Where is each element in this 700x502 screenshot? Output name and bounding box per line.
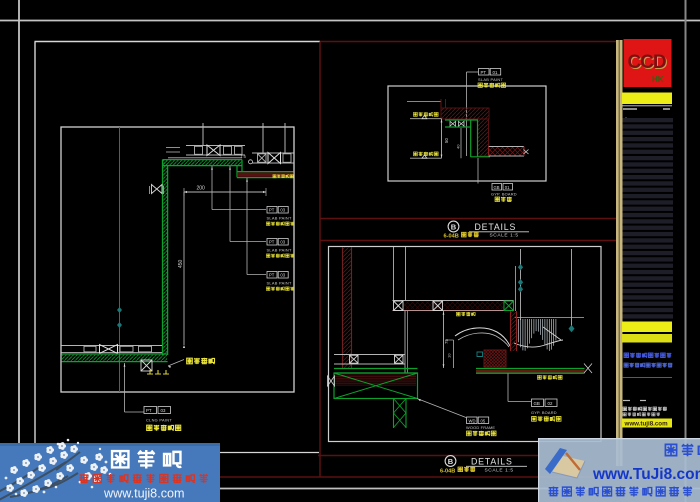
svg-text:PT: PT: [481, 70, 487, 75]
svg-text:03: 03: [280, 240, 285, 245]
svg-text:DETAILS: DETAILS: [475, 222, 517, 232]
svg-text:50: 50: [444, 138, 449, 143]
svg-text:01: 01: [493, 70, 498, 75]
svg-text:www.tuji8.com: www.tuji8.com: [624, 421, 669, 428]
svg-text:SLAB PAINT: SLAB PAINT: [267, 281, 293, 286]
svg-text:6-04B: 6-04B: [444, 234, 459, 240]
svg-text:03: 03: [161, 408, 166, 413]
svg-text:40: 40: [456, 144, 461, 149]
svg-text:01: 01: [505, 185, 510, 190]
svg-text:www.TuJi8.com: www.TuJi8.com: [592, 466, 700, 483]
svg-text:10: 10: [447, 353, 452, 358]
svg-text:450: 450: [178, 259, 184, 268]
svg-text:1:0: 1:0: [241, 154, 247, 159]
svg-text:SLAB PAINT: SLAB PAINT: [478, 77, 504, 82]
svg-text:B: B: [451, 223, 457, 232]
svg-text:WD: WD: [469, 418, 476, 423]
svg-text:PT: PT: [269, 208, 275, 213]
svg-text:WOOD FRAME: WOOD FRAME: [466, 425, 495, 430]
svg-text:6-04B: 6-04B: [440, 468, 455, 474]
svg-text:03: 03: [280, 273, 285, 278]
svg-text:CLNG PAINT: CLNG PAINT: [146, 418, 172, 423]
svg-text:PT: PT: [269, 240, 275, 245]
svg-text:GYP. BOARD: GYP. BOARD: [491, 191, 517, 196]
svg-text:CCD: CCD: [628, 52, 666, 73]
svg-text:B: B: [448, 457, 454, 466]
svg-text:SLAB PAINT: SLAB PAINT: [267, 248, 293, 253]
svg-text:PT: PT: [269, 273, 275, 278]
svg-text:SCALE 1:5: SCALE 1:5: [485, 467, 514, 473]
svg-text:www.tuji8.com: www.tuji8.com: [103, 487, 184, 501]
svg-text:05: 05: [481, 418, 486, 423]
svg-text:PT: PT: [146, 408, 152, 413]
svg-text:SLAB PAINT: SLAB PAINT: [267, 216, 293, 221]
svg-text:GYP. BOARD: GYP. BOARD: [531, 410, 557, 415]
svg-text:DETAILS: DETAILS: [471, 456, 513, 466]
svg-text:GB: GB: [534, 401, 540, 406]
svg-text:75: 75: [444, 339, 449, 344]
svg-text:HK: HK: [652, 75, 664, 84]
svg-text:02: 02: [548, 401, 553, 406]
svg-text:03: 03: [280, 208, 285, 213]
svg-text:200: 200: [197, 186, 206, 192]
svg-text:GB: GB: [494, 185, 500, 190]
svg-text:SCALE 1:5: SCALE 1:5: [490, 233, 519, 239]
